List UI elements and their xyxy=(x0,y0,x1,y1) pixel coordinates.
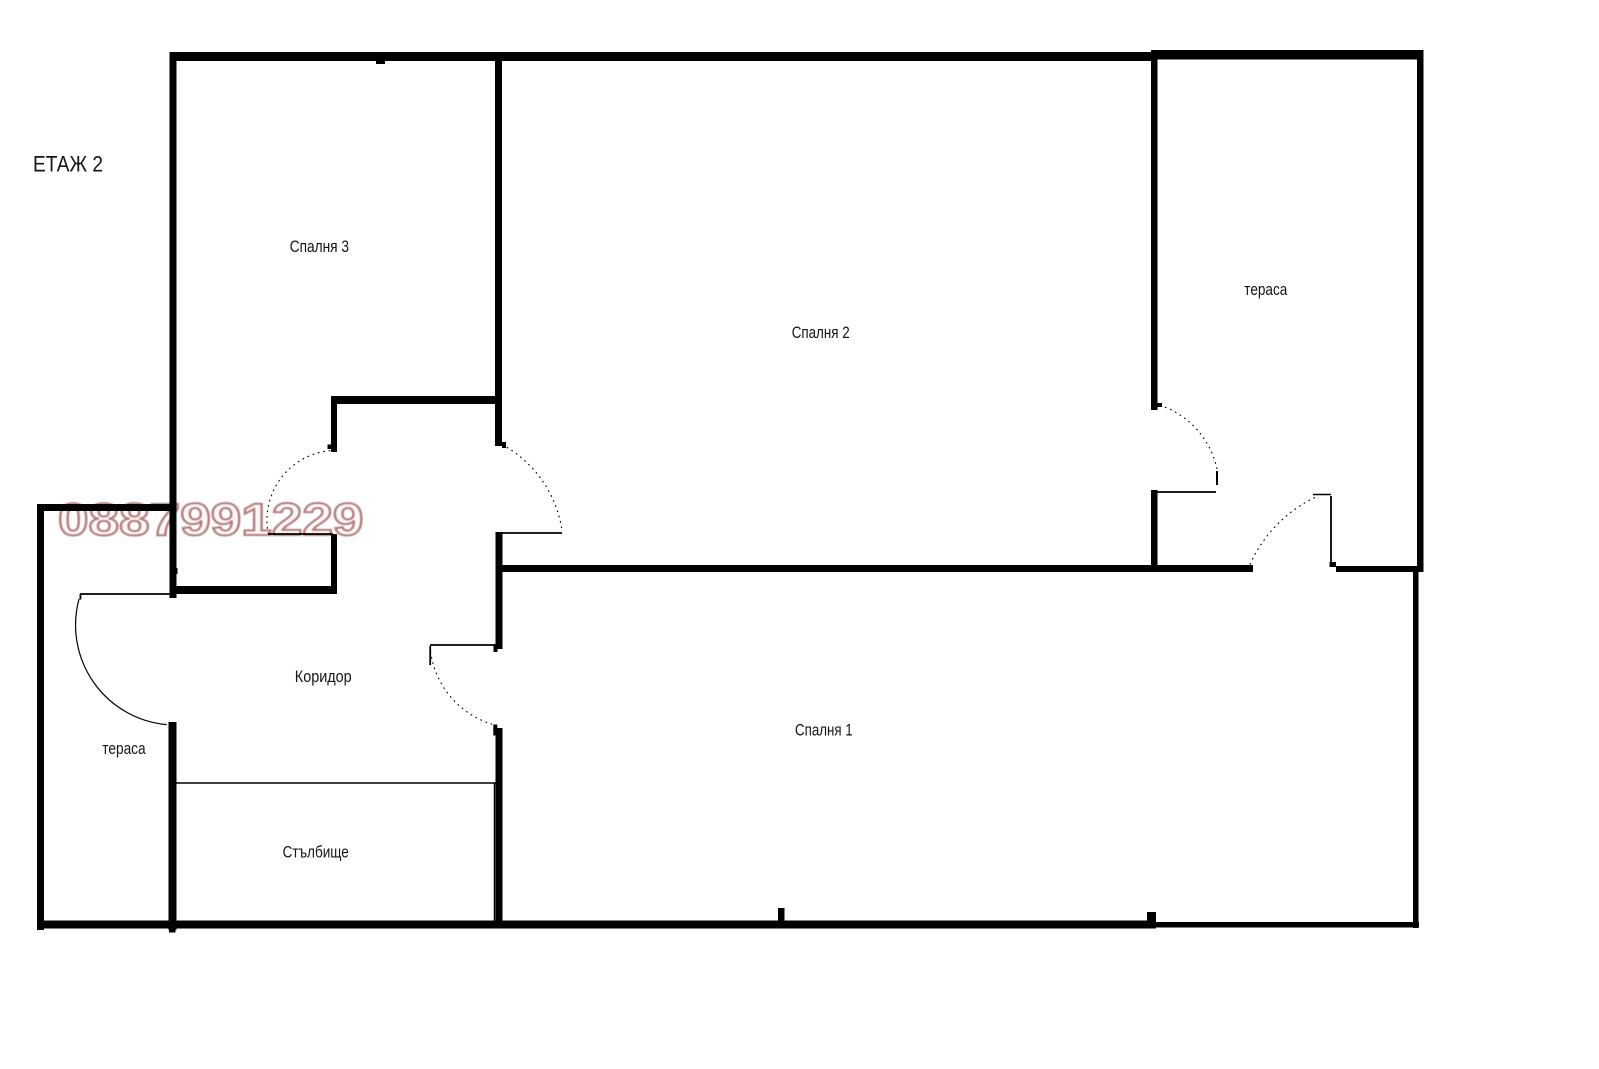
svg-text:Спалня 1: Спалня 1 xyxy=(795,720,853,739)
svg-text:тераса: тераса xyxy=(102,739,146,758)
svg-text:0887991229: 0887991229 xyxy=(58,494,364,545)
svg-text:Спалня 3: Спалня 3 xyxy=(290,237,349,256)
svg-text:Стълбище: Стълбище xyxy=(283,842,349,861)
svg-text:ЕТАЖ 2: ЕТАЖ 2 xyxy=(33,151,103,176)
svg-text:Коридор: Коридор xyxy=(295,667,352,686)
svg-text:Спалня 2: Спалня 2 xyxy=(792,323,850,342)
svg-text:тераса: тераса xyxy=(1244,280,1288,299)
